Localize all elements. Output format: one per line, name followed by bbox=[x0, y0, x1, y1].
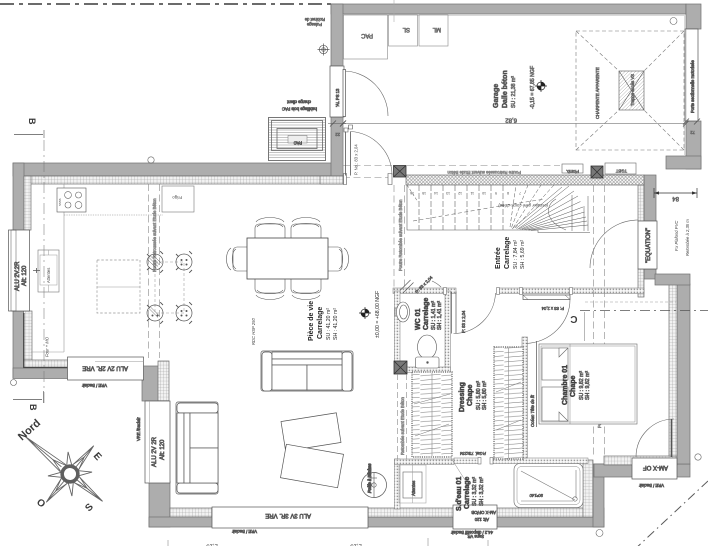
svg-text:ML: ML bbox=[432, 26, 441, 32]
svg-text:Alt: 120: Alt: 120 bbox=[474, 517, 489, 522]
svg-text:P: 83 x 2,04: P: 83 x 2,04 bbox=[541, 306, 564, 311]
svg-text:6,82: 6,82 bbox=[505, 117, 517, 123]
svg-text:habillage bois PAC: habillage bois PAC bbox=[282, 107, 317, 112]
svg-text:SSSS: SSSS bbox=[58, 198, 62, 206]
svg-text:ALU 2V 2R. VRE: ALU 2V 2R. VRE bbox=[82, 365, 128, 371]
svg-text:AM-X OF/OB: AM-X OF/OB bbox=[471, 510, 496, 515]
svg-text:Dressing: Dressing bbox=[459, 382, 466, 412]
svg-text:Alt: 120: Alt: 120 bbox=[22, 265, 28, 286]
svg-text:VRE / Baclair: VRE / Baclair bbox=[231, 529, 257, 534]
svg-text:14: 14 bbox=[434, 191, 438, 195]
svg-text:Porte sectionnelle motorisée: Porte sectionnelle motorisée bbox=[690, 59, 695, 113]
svg-text:9: 9 bbox=[495, 191, 497, 195]
svg-text:Plomb.: Plomb. bbox=[566, 169, 579, 174]
svg-text:Retombée suivant Etude Béton: Retombée suivant Etude Béton bbox=[400, 396, 405, 455]
svg-text:P. No.: 83 x 2,04: P. No.: 83 x 2,04 bbox=[354, 144, 359, 175]
svg-text:ALU 3V 3R. VRE: ALU 3V 3R. VRE bbox=[265, 512, 311, 518]
svg-text:2,15: 2,15 bbox=[350, 543, 362, 546]
svg-text:SH : 5,69 m²: SH : 5,69 m² bbox=[520, 240, 526, 269]
svg-text:72: 72 bbox=[690, 130, 695, 135]
svg-text:Retombée à 2,35 m: Retombée à 2,35 m bbox=[685, 219, 690, 256]
svg-text:Carrelage: Carrelage bbox=[504, 237, 511, 269]
svg-text:2,15: 2,15 bbox=[206, 543, 218, 546]
svg-text:Chape: Chape bbox=[467, 385, 474, 407]
svg-text:Poutre Retombée suivant Etude: Poutre Retombée suivant Etude Béton bbox=[398, 199, 403, 271]
svg-text:Dalle béton: Dalle béton bbox=[502, 70, 509, 108]
svg-text:13: 13 bbox=[446, 191, 450, 195]
svg-text:VRE /Baclair: VRE /Baclair bbox=[136, 417, 141, 441]
svg-text:11: 11 bbox=[470, 191, 474, 195]
svg-text:SU : 21,38 m²: SU : 21,38 m² bbox=[511, 76, 517, 108]
svg-text:RDC HSP 250: RDC HSP 250 bbox=[251, 317, 256, 345]
svg-text:SH : 9,82 m²: SH : 9,82 m² bbox=[585, 371, 591, 400]
svg-text:charge client: charge client bbox=[286, 100, 311, 105]
svg-text:(escalier géré corps-d'état): (escalier géré corps-d'état) bbox=[498, 203, 548, 208]
svg-text:15: 15 bbox=[422, 191, 426, 195]
svg-text:Trappe accès VS: Trappe accès VS bbox=[630, 74, 635, 106]
svg-text:Puisage: Puisage bbox=[306, 22, 322, 27]
svg-text:PAC: PAC bbox=[294, 141, 302, 146]
svg-text:SH : 3,32 m²: SH : 3,32 m² bbox=[479, 477, 485, 506]
svg-text:Poêle à Bûches: Poêle à Bûches bbox=[367, 463, 372, 493]
svg-text:PAC: PAC bbox=[360, 32, 373, 38]
svg-text:Attentes: Attentes bbox=[411, 481, 416, 496]
svg-text:WC 01: WC 01 bbox=[415, 309, 422, 331]
svg-text:Garage: Garage bbox=[493, 84, 500, 108]
svg-text:Alt: 120: Alt: 120 bbox=[160, 439, 166, 460]
svg-text:Océan Tête de lit: Océan Tête de lit bbox=[530, 394, 535, 427]
svg-text:16: 16 bbox=[410, 191, 414, 195]
svg-text:P: 83 x 2,04: P: 83 x 2,04 bbox=[461, 310, 466, 333]
svg-text:B: B bbox=[27, 118, 37, 125]
svg-text:Entrée: Entrée bbox=[495, 247, 502, 269]
svg-text:ALU 2V 2R: ALU 2V 2R bbox=[152, 436, 158, 467]
svg-text:8: 8 bbox=[507, 191, 509, 195]
svg-text:F.x Plafond PVC: F.x Plafond PVC bbox=[674, 220, 679, 251]
svg-text:S.d'eau 01: S.d'eau 01 bbox=[456, 477, 463, 511]
svg-text:84: 84 bbox=[672, 195, 679, 201]
svg-text:"EQUATION": "EQUATION" bbox=[646, 228, 652, 263]
svg-text:VRE / Baclair: VRE / Baclair bbox=[81, 383, 107, 388]
svg-text:Carrelage: Carrelage bbox=[423, 298, 430, 330]
svg-text:VRE / Baclair: VRE / Baclair bbox=[638, 483, 664, 488]
svg-text:AM-X OF: AM-X OF bbox=[643, 464, 668, 470]
svg-text:'AL PS 13: 'AL PS 13 bbox=[335, 88, 340, 107]
svg-text:Frigo: Frigo bbox=[172, 195, 182, 200]
svg-text:SU : 3,32 m²: SU : 3,32 m² bbox=[472, 477, 478, 506]
svg-text:22: 22 bbox=[335, 132, 340, 137]
svg-text:Pièce de vie: Pièce de vie bbox=[308, 301, 315, 341]
svg-text:SL: SL bbox=[402, 26, 410, 32]
svg-text:10: 10 bbox=[482, 191, 486, 195]
svg-text:7: 7 bbox=[519, 191, 521, 195]
svg-text:SH : 41,20 m²: SH : 41,20 m² bbox=[333, 308, 339, 340]
svg-text:B: B bbox=[28, 404, 38, 411]
svg-text:-0,15 = 67,85 NGF: -0,15 = 67,85 NGF bbox=[530, 66, 536, 109]
svg-text:12: 12 bbox=[458, 191, 462, 195]
svg-text:Four + MO: Four + MO bbox=[45, 336, 50, 357]
svg-text:Chape: Chape bbox=[570, 376, 577, 398]
svg-text:SU : 7,84 m²: SU : 7,84 m² bbox=[513, 240, 519, 269]
svg-text:ALU 2V.2R: ALU 2V.2R bbox=[15, 261, 21, 291]
svg-text:Chambre 01: Chambre 01 bbox=[562, 365, 569, 405]
svg-text:Poutre Retroussée suivant Etud: Poutre Retroussée suivant Etude Béton bbox=[447, 170, 521, 175]
svg-text:Poutre Retroussée suivant Etud: Poutre Retroussée suivant Etude Béton bbox=[152, 198, 157, 272]
svg-text:Attentes: Attentes bbox=[46, 268, 51, 283]
svg-text:Carrelage: Carrelage bbox=[317, 307, 324, 339]
svg-text:±0,00 = +68,00 NGF: ±0,00 = +68,00 NGF bbox=[375, 291, 381, 338]
svg-text:CHARPENTE APPARENTE: CHARPENTE APPARENTE bbox=[595, 67, 600, 119]
svg-text:SH : 1,41 m²: SH : 1,41 m² bbox=[437, 301, 443, 330]
svg-text:SU : 41,20 m²: SU : 41,20 m² bbox=[326, 308, 332, 340]
svg-text:90*140: 90*140 bbox=[529, 493, 543, 498]
svg-text:P.Gal. 73x234: P.Gal. 73x234 bbox=[459, 451, 486, 456]
svg-text:Carrelage: Carrelage bbox=[464, 477, 471, 509]
svg-text:Sans VR: Sans VR bbox=[467, 534, 484, 539]
svg-text:TGBT: TGBT bbox=[615, 169, 627, 174]
svg-text:SH : 5,80 m²: SH : 5,80 m² bbox=[482, 381, 488, 410]
svg-text:C: C bbox=[570, 313, 577, 324]
svg-text:Robinet de: Robinet de bbox=[304, 17, 325, 22]
